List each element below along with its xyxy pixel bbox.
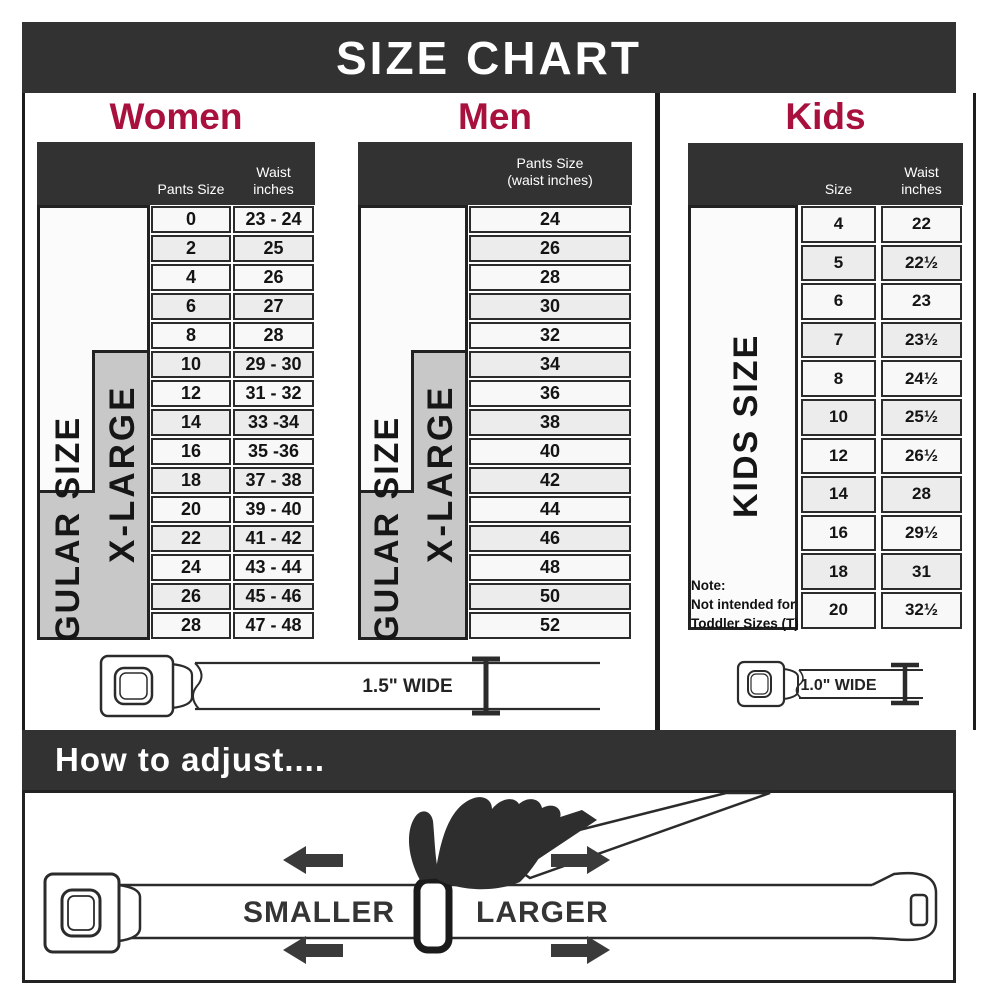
table-cell: 47 - 48: [233, 612, 314, 639]
table-cell: 16: [151, 438, 231, 465]
adult-belt-width-label: 1.5" WIDE: [330, 676, 485, 698]
table-cell: 30: [469, 293, 631, 320]
table-cell: 6: [801, 283, 876, 320]
page-title: SIZE CHART: [336, 31, 642, 85]
table-cell: 26½: [881, 438, 962, 475]
table-cell: 24½: [881, 360, 962, 397]
men-size-category-blocks: REGULAR SIZE X-LARGE: [358, 205, 468, 640]
table-cell: 37 - 38: [233, 467, 314, 494]
table-cell: 25½: [881, 399, 962, 436]
belt-tip: [872, 873, 936, 940]
table-cell: 41 - 42: [233, 525, 314, 552]
table-cell: 26: [469, 235, 631, 262]
table-cell: 23½: [881, 322, 962, 359]
kids-note: Note: Not intended for Toddler Sizes (T): [691, 576, 803, 633]
table-cell: 16: [801, 515, 876, 552]
larger-arrow-bottom-icon: [551, 936, 610, 964]
table-cell: 33 -34: [233, 409, 314, 436]
table-cell: 14: [151, 409, 231, 436]
kids-table-header: Size Waist inches: [688, 143, 963, 205]
table-cell: 23 - 24: [233, 206, 314, 233]
right-panel-border: [973, 93, 976, 730]
table-cell: 8: [801, 360, 876, 397]
panel-divider: [655, 93, 660, 730]
women-col-waist: Waist inches: [232, 164, 315, 198]
table-cell: 42: [469, 467, 631, 494]
table-cell: 5: [801, 245, 876, 282]
kids-col-size: Size: [800, 181, 877, 198]
women-section-title: Women: [37, 96, 315, 138]
table-cell: 28: [469, 264, 631, 291]
kids-size-table: 422522½623723½824½1025½1226½14281629½183…: [800, 205, 963, 630]
table-cell: 24: [469, 206, 631, 233]
table-cell: 22½: [881, 245, 962, 282]
table-cell: 12: [801, 438, 876, 475]
larger-label: LARGER: [476, 896, 596, 930]
table-cell: 44: [469, 496, 631, 523]
kids-col-waist: Waist inches: [880, 164, 963, 198]
table-cell: 38: [469, 409, 631, 436]
men-section-title: Men: [358, 96, 632, 138]
table-cell: 20: [151, 496, 231, 523]
smaller-arrow-top-icon: [283, 846, 343, 874]
table-cell: 34: [469, 351, 631, 378]
kids-size-side-label: KIDS SIZE: [727, 334, 765, 518]
table-cell: 35 -36: [233, 438, 314, 465]
men-table-header: Pants Size (waist inches): [358, 142, 632, 205]
adjust-belt-illustration: [22, 790, 956, 983]
women-size-category-blocks: REGULAR SIZE X-LARGE: [37, 205, 150, 640]
table-cell: 28: [233, 322, 314, 349]
table-cell: 22: [151, 525, 231, 552]
table-cell: 36: [469, 380, 631, 407]
smaller-arrow-bottom-icon: [283, 936, 343, 964]
table-cell: 28: [151, 612, 231, 639]
table-cell: 43 - 44: [233, 554, 314, 581]
women-regular-size-label: REGULAR SIZE: [49, 416, 87, 640]
table-cell: 7: [801, 322, 876, 359]
size-chart-infographic: { "header": { "title": "SIZE CHART" }, "…: [0, 0, 1000, 1000]
women-table-header: Pants Size Waist inches: [37, 142, 315, 205]
table-cell: 25: [233, 235, 314, 262]
table-cell: 12: [151, 380, 231, 407]
table-cell: 50: [469, 583, 631, 610]
table-cell: 10: [801, 399, 876, 436]
table-cell: 45 - 46: [233, 583, 314, 610]
table-cell: 26: [151, 583, 231, 610]
table-cell: 32½: [881, 592, 962, 629]
table-cell: 32: [469, 322, 631, 349]
table-cell: 22: [881, 206, 962, 243]
table-cell: 29 - 30: [233, 351, 314, 378]
size-chart-title-bar: SIZE CHART: [22, 22, 956, 93]
men-regular-size-label: REGULAR SIZE: [368, 416, 406, 640]
table-cell: 18: [151, 467, 231, 494]
table-cell: 23: [881, 283, 962, 320]
table-cell: 40: [469, 438, 631, 465]
kids-section-title: Kids: [688, 96, 963, 138]
table-cell: 14: [801, 476, 876, 513]
table-cell: 4: [801, 206, 876, 243]
kids-size-category-block: KIDS SIZE: [688, 205, 798, 630]
table-cell: 48: [469, 554, 631, 581]
how-to-adjust-heading: How to adjust....: [55, 741, 325, 779]
table-cell: 26: [233, 264, 314, 291]
table-cell: 31 - 32: [233, 380, 314, 407]
left-panel-border: [22, 93, 25, 730]
table-cell: 29½: [881, 515, 962, 552]
smaller-label: SMALLER: [243, 896, 381, 930]
belt-slider: [417, 880, 449, 950]
how-to-adjust-bar: How to adjust....: [22, 730, 956, 790]
table-cell: 10: [151, 351, 231, 378]
men-col-pants-size: Pants Size (waist inches): [468, 155, 632, 189]
men-xlarge-label: X-LARGE: [421, 385, 460, 564]
table-cell: 27: [233, 293, 314, 320]
table-cell: 6: [151, 293, 231, 320]
table-cell: 46: [469, 525, 631, 552]
table-cell: 4: [151, 264, 231, 291]
women-size-table: 023 - 242254266278281029 - 301231 - 3214…: [150, 205, 315, 640]
women-col-pants-size: Pants Size: [150, 181, 232, 198]
men-size-table: 242628303234363840424446485052: [468, 205, 632, 640]
table-cell: 2: [151, 235, 231, 262]
table-cell: 28: [881, 476, 962, 513]
table-cell: 8: [151, 322, 231, 349]
table-cell: 0: [151, 206, 231, 233]
women-xlarge-label: X-LARGE: [103, 385, 142, 564]
table-cell: 31: [881, 553, 962, 590]
table-cell: 20: [801, 592, 876, 629]
table-cell: 24: [151, 554, 231, 581]
table-cell: 52: [469, 612, 631, 639]
belt-buckle: [45, 874, 140, 952]
table-cell: 39 - 40: [233, 496, 314, 523]
kids-belt-width-label: 1.0" WIDE: [791, 677, 886, 695]
table-cell: 18: [801, 553, 876, 590]
